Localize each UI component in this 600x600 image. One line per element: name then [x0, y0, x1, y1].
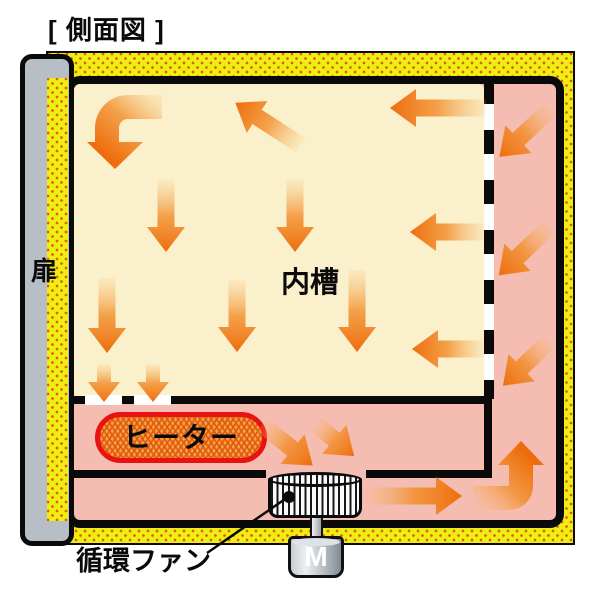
- heater-compartment-floor-left: [74, 470, 266, 478]
- heater-compartment-right-wall: [484, 396, 492, 478]
- heater: ヒーター: [95, 412, 267, 463]
- bottom-wall-gap: [134, 395, 171, 405]
- inner-chamber-label: 内槽: [260, 267, 360, 299]
- page-title: [ 側面図 ]: [48, 15, 165, 45]
- door-insulation-strip: [47, 78, 68, 521]
- heater-label: ヒーター: [123, 424, 239, 452]
- oven-side-view-diagram: ヒーター M [ 側面図 ] 扉 内槽 循環ファン: [0, 0, 600, 600]
- bottom-wall-gap: [85, 395, 122, 405]
- inner-chamber: [74, 84, 484, 399]
- motor-top-rim: [292, 538, 340, 546]
- circulation-fan-drum-top: [268, 472, 362, 487]
- circulation-fan-label: 循環ファン: [76, 546, 211, 576]
- door-label: 扉: [24, 257, 64, 285]
- heater-compartment-floor-right: [366, 470, 492, 478]
- motor-label: M: [304, 543, 327, 571]
- perforated-right-wall: [484, 84, 494, 399]
